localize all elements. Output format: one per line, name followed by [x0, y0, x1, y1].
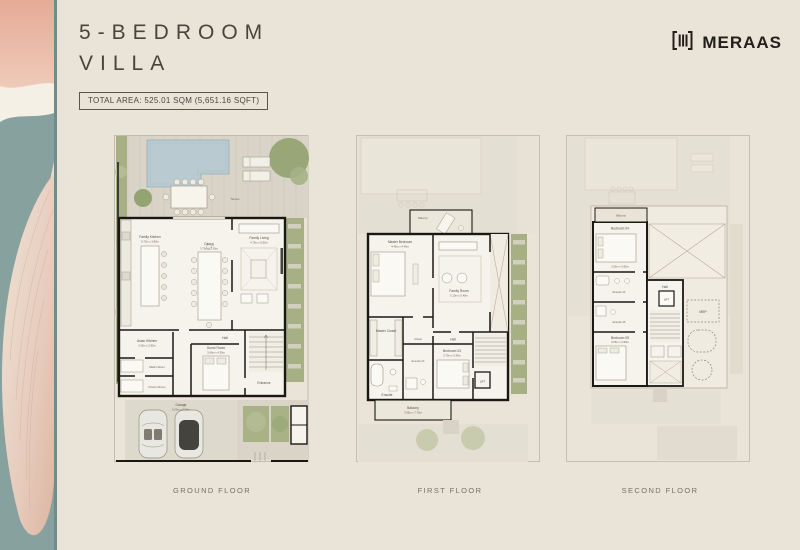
bedroom-03-bed — [437, 360, 469, 388]
page-title-line2: VILLA — [79, 48, 269, 79]
room-dims-bedroom-05: 3.65m x 4.50m — [611, 340, 630, 344]
page-title: 5-BEDROOM VILLA — [79, 17, 269, 79]
room-label-bedroom-03: Bedroom 03 — [443, 349, 461, 353]
room-label-ensuite-05: Ensuite 05 — [613, 320, 626, 324]
room-label-master-bedroom: Master Bedroom — [388, 240, 413, 244]
room-label-guest-room: Guest Room — [207, 346, 226, 350]
room-label-closet: Closet — [414, 337, 422, 341]
room-label-lift: LIFT — [664, 298, 670, 302]
room-dims-dining: 3.75m x 7.30m — [200, 247, 219, 251]
brand-logo: MERAAS — [670, 28, 782, 58]
decorative-art-strip — [0, 0, 57, 550]
room-label-hall: Hall — [662, 285, 668, 289]
meraas-bars-icon — [670, 28, 695, 58]
room-dims-family-room: 5.10m x 5.40m — [450, 294, 469, 298]
first-floor-plan: Balcony Master Bedroom 4.45m x 4.45m Mas… — [355, 132, 545, 470]
room-label-family-kitchen: Family Kitchen — [139, 235, 161, 239]
room-label-family-living: Family Living — [249, 236, 268, 240]
ground-floor-label: GROUND FLOOR — [113, 486, 311, 495]
room-dims-garage: 6.00m x 6.00m — [172, 408, 191, 412]
total-area-badge: TOTAL AREA: 525.01 SQM (5,651.16 SQFT) — [79, 92, 268, 110]
room-label-bedroom-05: Bedroom 05 — [611, 336, 629, 340]
bedroom-04-bed — [596, 234, 636, 262]
room-dims-family-living: 4.75m x 5.80m — [250, 241, 269, 245]
rear-balcony — [375, 400, 451, 420]
room-dims-master-bedroom: 4.45m x 4.45m — [391, 245, 410, 249]
bedroom-05-bed — [596, 346, 626, 380]
room-label-garage: Garage — [176, 403, 187, 407]
art-strip-graphic — [0, 0, 57, 550]
ground-floor-plan: Terrace — [113, 132, 311, 470]
second-floor-plan: Balcony Bedroom 04 3.05m x 3.80m Ensuite… — [565, 132, 755, 470]
first-floor-label: FIRST FLOOR — [355, 486, 545, 495]
car-convertible — [139, 410, 167, 458]
room-label-balcony: Balcony — [418, 216, 428, 220]
room-dims-asian-kitchen: 3.30m x 2.85m — [138, 344, 157, 348]
room-dims-rear-balcony: 3.95m x 7.70m — [404, 411, 423, 415]
room-dims-guest-room: 3.60m x 4.30m — [207, 351, 226, 355]
first-floor-panel: Balcony Master Bedroom 4.45m x 4.45m Mas… — [355, 132, 545, 504]
room-label-asian-kitchen: Asian Kitchen — [137, 339, 157, 343]
ghost-garden-strip — [730, 224, 743, 374]
room-dims-family-kitchen: 5.75m x 3.80m — [141, 240, 160, 244]
room-dims-bedroom-04: 3.05m x 3.80m — [611, 265, 630, 269]
first-stairs — [475, 334, 506, 366]
driveway — [237, 400, 308, 460]
room-label-dining: Dining — [204, 242, 214, 246]
brochure-page: 5-BEDROOM VILLA TOTAL AREA: 525.01 SQM (… — [0, 0, 800, 550]
second-hall-block — [647, 280, 683, 386]
room-label-drivers-room: Driver's Room — [149, 385, 167, 389]
side-garden — [511, 234, 527, 394]
room-label-lift: LIFT — [480, 380, 486, 384]
brand-name: MERAAS — [702, 33, 782, 53]
room-label-master-closet: Master Closet — [376, 329, 396, 333]
room-label-ensuite-03: Ensuite 03 — [412, 359, 425, 363]
page-title-line1: 5-BEDROOM — [79, 17, 269, 48]
open-to-below-hatch — [649, 224, 725, 278]
ground-floor-panel: Terrace — [113, 132, 311, 504]
second-floor-label: SECOND FLOOR — [565, 486, 755, 495]
room-label-terrace: Terrace — [231, 197, 240, 201]
front-balcony — [410, 210, 472, 234]
room-label-family-room: Family Room — [449, 289, 469, 293]
car-sedan — [175, 410, 203, 458]
room-label-hall: Hall — [450, 338, 456, 342]
ghost-garden-below — [358, 420, 528, 462]
room-label-ensuite-04: Ensuite 04 — [613, 290, 626, 294]
guest-bed — [203, 356, 229, 390]
room-label-balcony: Balcony — [616, 214, 626, 218]
room-label-entrance: Entrance — [257, 381, 270, 385]
room-label-mep: MEP — [699, 310, 707, 314]
room-label-hall: Hall — [222, 336, 228, 340]
room-label-master-ensuite: Ensuite — [382, 393, 393, 397]
room-label-bedroom-04: Bedroom 04 — [611, 227, 629, 231]
room-dims-bedroom-03: 3.70m x 5.45m — [443, 354, 462, 358]
ground-stairs — [249, 332, 283, 372]
ghost-terrace-below — [591, 388, 737, 460]
room-label-rear-balcony: Balcony — [407, 406, 419, 410]
room-label-maids-room: Maid's Room — [149, 365, 165, 369]
second-floor-panel: Balcony Bedroom 04 3.05m x 3.80m Ensuite… — [565, 132, 755, 504]
